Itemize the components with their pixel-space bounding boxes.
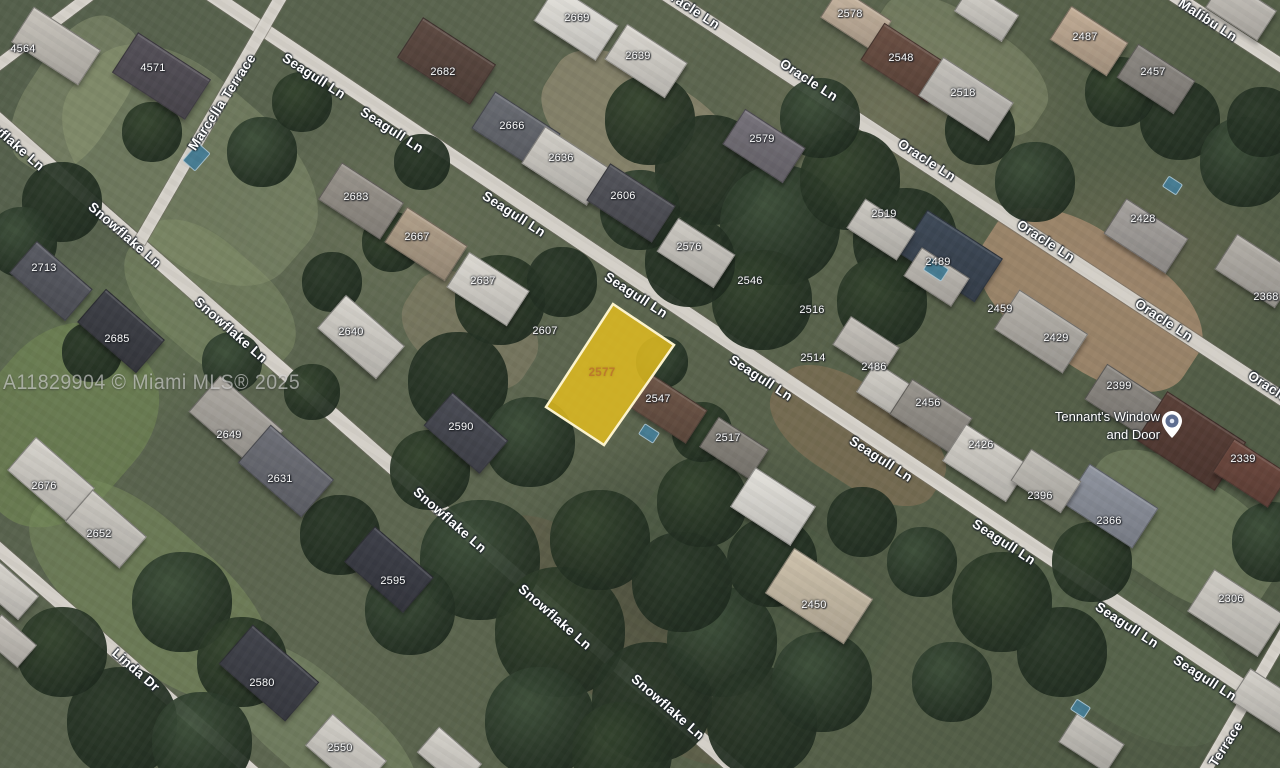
parcel-number-label: 2683 bbox=[343, 191, 368, 203]
tree bbox=[632, 532, 732, 632]
parcel-number-label: 2486 bbox=[861, 361, 886, 373]
parcel-number-label: 2429 bbox=[1043, 332, 1068, 344]
parcel-number-label: 2637 bbox=[470, 275, 495, 287]
parcel-number-label: 2579 bbox=[749, 133, 774, 145]
parcel-number-label: 2519 bbox=[871, 208, 896, 220]
parcel-number-label: 2631 bbox=[267, 473, 292, 485]
parcel-number-label: 2399 bbox=[1106, 380, 1131, 392]
parcel-number-label: 4564 bbox=[10, 43, 35, 55]
parcel-number-label: 2713 bbox=[31, 262, 56, 274]
parcel-number-label: 2666 bbox=[499, 120, 524, 132]
parcel-number-label: 2640 bbox=[338, 326, 363, 338]
parcel-number-label: 2576 bbox=[676, 241, 701, 253]
parcel-number-label: 2459 bbox=[987, 303, 1012, 315]
parcel-number-label: 2607 bbox=[532, 325, 557, 337]
highlighted-parcel-number: 2577 bbox=[589, 367, 616, 379]
parcel-number-label: 2428 bbox=[1130, 213, 1155, 225]
mls-watermark: A11829904 © Miami MLS® 2025 bbox=[3, 371, 300, 395]
swimming-pool bbox=[638, 423, 660, 444]
parcel-number-label: 2606 bbox=[610, 190, 635, 202]
parcel-number-label: 2548 bbox=[888, 52, 913, 64]
parcel-number-label: 2514 bbox=[800, 352, 825, 364]
parcel-number-label: 2550 bbox=[327, 742, 352, 754]
parcel-number-label: 2682 bbox=[430, 66, 455, 78]
parcel-number-label: 2489 bbox=[925, 256, 950, 268]
tree bbox=[827, 487, 897, 557]
parcel-number-label: 2595 bbox=[380, 575, 405, 587]
parcel-number-label: 2636 bbox=[548, 152, 573, 164]
house-roof bbox=[416, 726, 481, 768]
satellite-map-image[interactable]: Marcella TerraceSeagull LnSeagull LnSeag… bbox=[0, 0, 1280, 768]
parcel-number-label: 2339 bbox=[1230, 453, 1255, 465]
house-roof bbox=[396, 17, 495, 105]
swimming-pool bbox=[1161, 175, 1182, 195]
parcel-number-label: 2667 bbox=[404, 231, 429, 243]
parcel-number-label: 2368 bbox=[1253, 291, 1278, 303]
parcel-number-label: 2516 bbox=[799, 304, 824, 316]
parcel-number-label: 2639 bbox=[625, 50, 650, 62]
parcel-number-label: 2487 bbox=[1072, 31, 1097, 43]
tree bbox=[995, 142, 1075, 222]
parcel-number-label: 2546 bbox=[737, 275, 762, 287]
parcel-number-label: 2456 bbox=[915, 397, 940, 409]
parcel-number-label: 2580 bbox=[249, 677, 274, 689]
business-poi-label: Tennant's Window and Door bbox=[960, 408, 1160, 443]
parcel-number-label: 2676 bbox=[31, 480, 56, 492]
business-name-line2: and Door bbox=[960, 426, 1160, 444]
tree bbox=[887, 527, 957, 597]
parcel-number-label: 2669 bbox=[564, 12, 589, 24]
parcel-number-label: 2457 bbox=[1140, 66, 1165, 78]
parcel-number-label: 2306 bbox=[1218, 593, 1243, 605]
business-name-line1: Tennant's Window bbox=[960, 408, 1160, 426]
parcel-number-label: 2547 bbox=[645, 393, 670, 405]
parcel-number-label: 2450 bbox=[801, 599, 826, 611]
parcel-number-label: 2652 bbox=[86, 528, 111, 540]
parcel-number-label: 2396 bbox=[1027, 490, 1052, 502]
parcel-number-label: 2517 bbox=[715, 432, 740, 444]
parcel-number-label: 2649 bbox=[216, 429, 241, 441]
parcel-number-label: 4571 bbox=[140, 62, 165, 74]
street-label: Oracle Ln bbox=[1245, 368, 1280, 416]
tree bbox=[912, 642, 992, 722]
parcel-number-label: 2518 bbox=[950, 87, 975, 99]
tree bbox=[1017, 607, 1107, 697]
parcel-number-label: 2685 bbox=[104, 333, 129, 345]
tree bbox=[527, 247, 597, 317]
business-pin-icon bbox=[1162, 411, 1182, 438]
tree bbox=[772, 632, 872, 732]
parcel-number-label: 2590 bbox=[448, 421, 473, 433]
parcel-number-label: 2578 bbox=[837, 8, 862, 20]
parcel-number-label: 2366 bbox=[1096, 515, 1121, 527]
